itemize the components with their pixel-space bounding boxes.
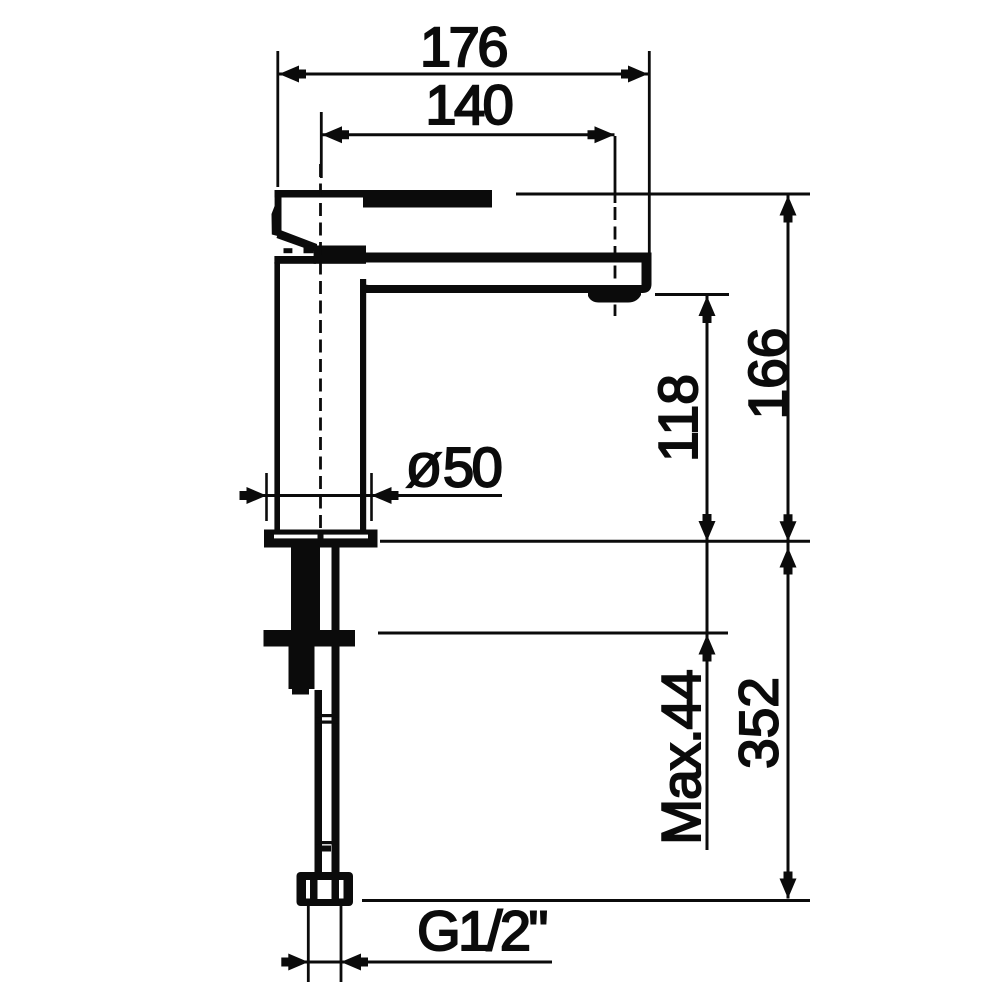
svg-text:118: 118 bbox=[647, 374, 709, 462]
svg-text:ø: ø bbox=[405, 432, 443, 501]
svg-text:176: 176 bbox=[420, 15, 506, 78]
svg-text:50: 50 bbox=[443, 436, 501, 499]
svg-text:352: 352 bbox=[728, 677, 790, 769]
svg-text:G1/2": G1/2" bbox=[417, 899, 546, 962]
svg-text:140: 140 bbox=[425, 73, 511, 136]
svg-text:Max.44: Max.44 bbox=[650, 670, 712, 844]
svg-text:166: 166 bbox=[737, 328, 799, 420]
